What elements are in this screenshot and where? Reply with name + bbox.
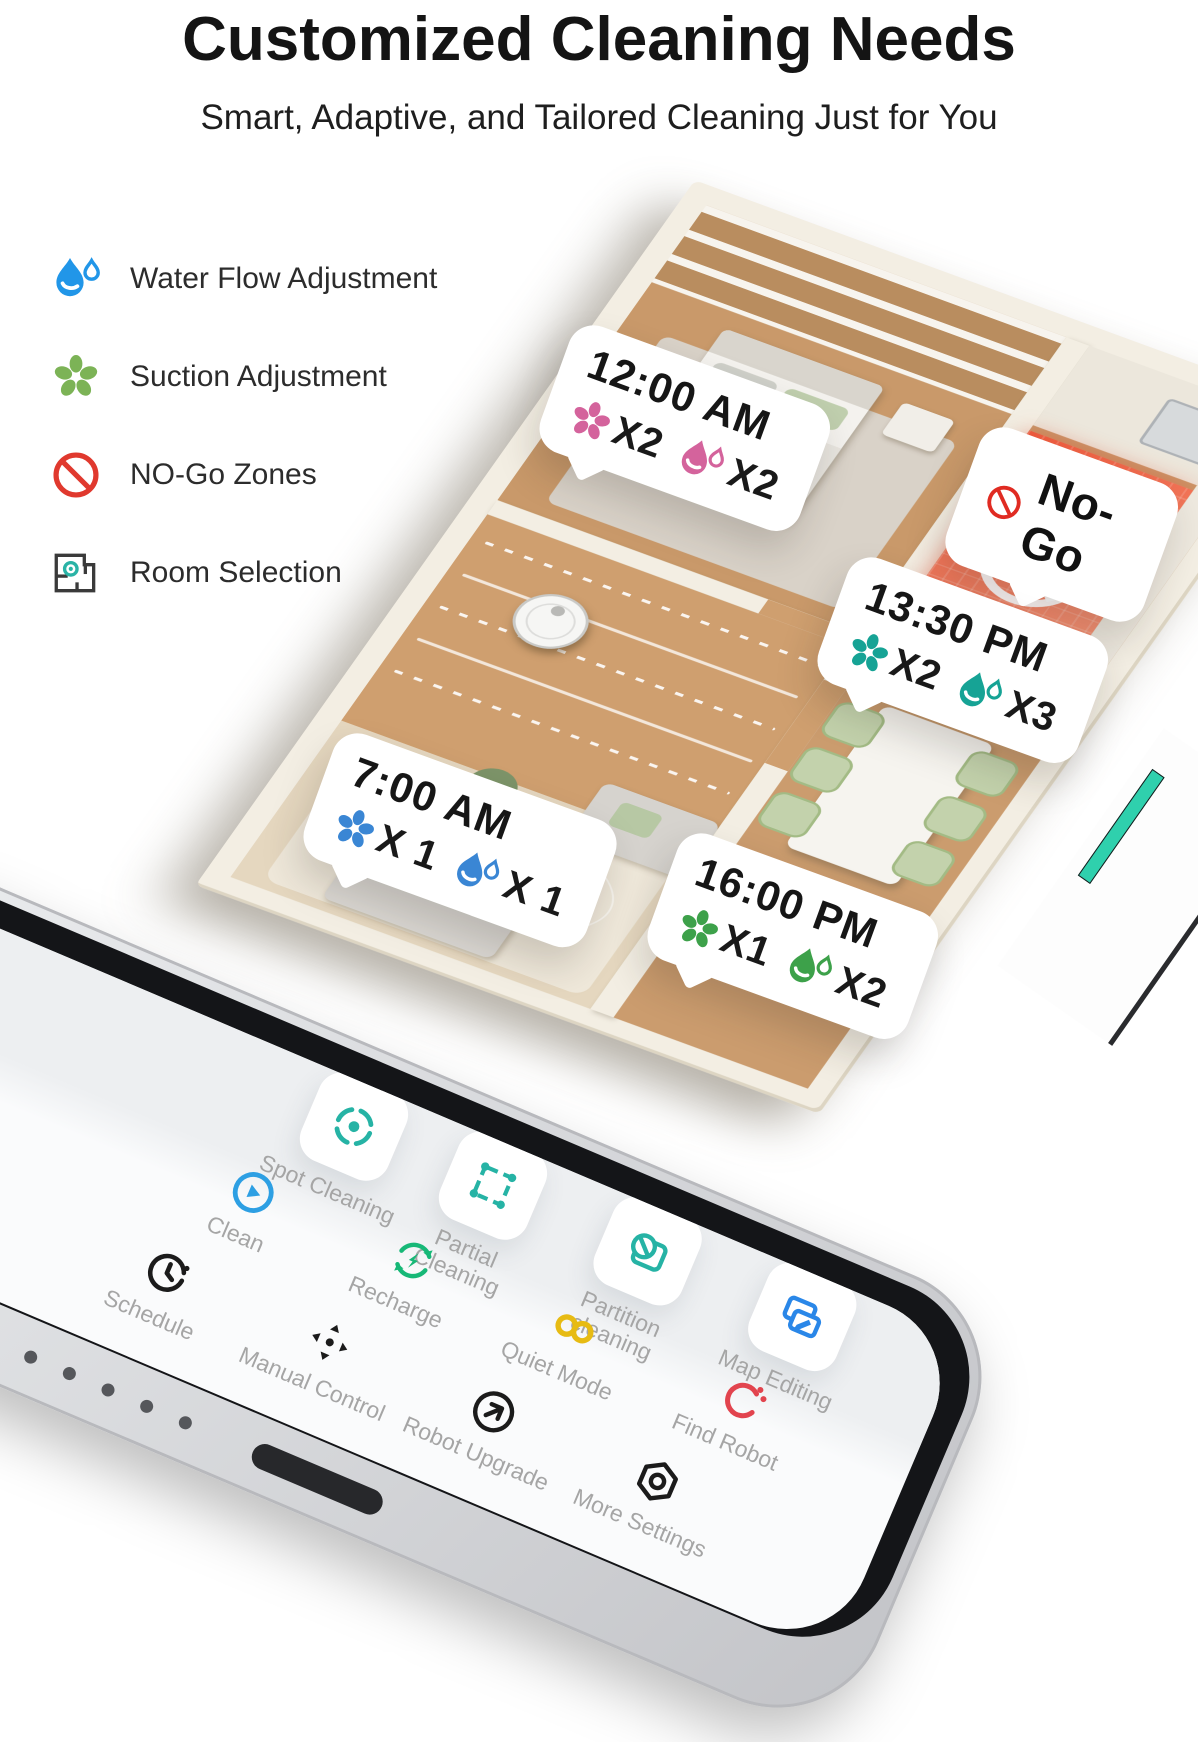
upgrade-icon (462, 1380, 525, 1443)
suction-fan-icon (52, 353, 100, 401)
settings-icon (626, 1450, 689, 1513)
legend-item-water-flow: Water Flow Adjustment (44, 248, 437, 310)
marquee-icon (460, 1153, 526, 1219)
room-selection-icon (49, 546, 103, 600)
speaker-hole (138, 1398, 155, 1415)
water-count: X2 (722, 450, 785, 510)
page-title: Customized Cleaning Needs (0, 4, 1198, 75)
no-go-label: No-Go (1013, 462, 1151, 600)
cleaning-path (416, 637, 753, 762)
legend-label: Room Selection (130, 556, 342, 590)
water-drop-icon (775, 937, 842, 1001)
map-edit-icon (769, 1284, 835, 1350)
legend-item-room-selection: Room Selection (44, 542, 437, 604)
water-drop-icon (48, 253, 104, 305)
suction-count: X1 (714, 916, 777, 976)
legend-label: Suction Adjustment (130, 360, 387, 394)
feature-legend: Water Flow Adjustment Suction Adjustment… (44, 248, 437, 640)
clock-icon (135, 1242, 198, 1305)
water-count: X2 (830, 958, 893, 1018)
water-drop-icon (442, 841, 509, 905)
target-icon (321, 1094, 387, 1160)
speaker-hole (177, 1414, 194, 1431)
speaker-hole (99, 1381, 116, 1398)
speaker-hole (61, 1365, 78, 1382)
cleaning-path (439, 605, 776, 730)
progress-bar (1078, 769, 1165, 884)
page-subtitle: Smart, Adaptive, and Tailored Cleaning J… (0, 98, 1198, 138)
move-icon (298, 1311, 361, 1374)
water-count: X3 (1000, 682, 1063, 742)
kitchen-sink (1138, 398, 1198, 469)
no-go-icon (977, 471, 1031, 533)
legend-label: Water Flow Adjustment (130, 262, 437, 296)
suction-count: X2 (606, 408, 669, 468)
speaker-hole (22, 1349, 39, 1366)
no-go-icon (50, 449, 102, 501)
dining-table (784, 705, 994, 887)
legend-item-no-go: NO-Go Zones (44, 444, 437, 506)
suction-count: X2 (884, 640, 947, 700)
app-label: Recharge (345, 1271, 447, 1333)
legend-label: NO-Go Zones (130, 458, 317, 492)
sofa-cushion (607, 801, 664, 839)
water-drop-icon (945, 661, 1012, 725)
zone-block-icon (615, 1218, 681, 1284)
legend-item-suction: Suction Adjustment (44, 346, 437, 408)
water-drop-icon (667, 429, 734, 493)
page: { "header": { "title": "Customized Clean… (0, 0, 1198, 1500)
